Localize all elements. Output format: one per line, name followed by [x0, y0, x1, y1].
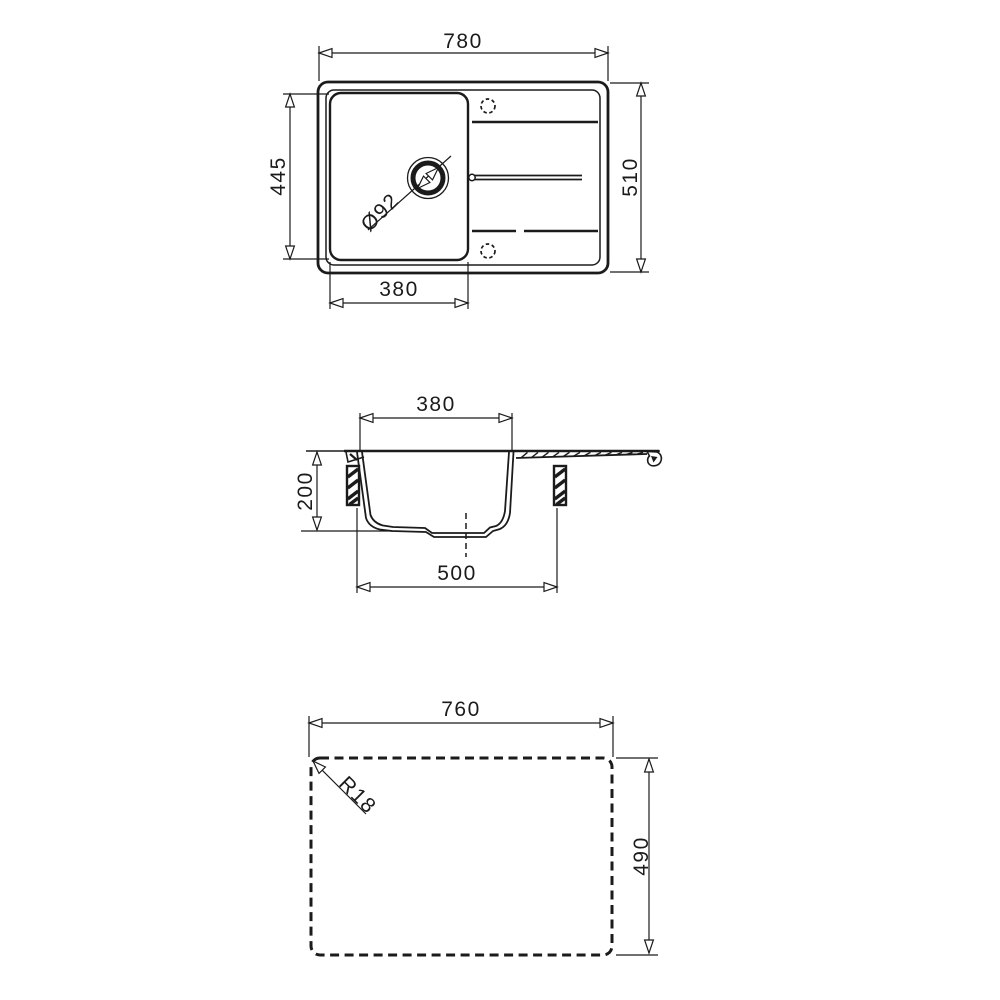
section-view — [301, 413, 661, 593]
dim-380-section — [360, 413, 512, 450]
top-view — [283, 46, 649, 309]
arrowhead — [418, 176, 430, 188]
label-cutout-width: 760 — [441, 698, 481, 721]
arrowhead — [313, 452, 322, 465]
arrowhead — [595, 49, 608, 58]
label-bowl-width-section: 380 — [416, 393, 456, 416]
drainboard-section — [516, 452, 661, 466]
arrowhead — [600, 719, 613, 728]
tap-hole-knockout-bottom — [481, 244, 495, 258]
mounting-clamp-left — [347, 466, 359, 505]
arrowhead — [286, 94, 295, 107]
label-overall-depth: 510 — [619, 157, 642, 197]
arrowhead — [357, 583, 370, 592]
bowl-section — [357, 452, 514, 537]
arrowhead — [309, 719, 322, 728]
arrowhead — [330, 299, 343, 308]
dimension-labels: 780 445 510 380 Ø92 380 200 500 760 490 … — [267, 30, 653, 876]
arrowhead — [637, 259, 646, 272]
arrowhead — [319, 49, 332, 58]
label-base-width: 500 — [437, 562, 477, 585]
arrowhead — [645, 940, 654, 953]
arrowhead — [313, 517, 322, 530]
sink-drawing-svg: 780 445 510 380 Ø92 380 200 500 760 490 … — [0, 0, 1000, 1000]
label-bowl-width-top: 380 — [379, 278, 419, 301]
label-cutout-depth: 490 — [630, 836, 653, 876]
drainboard-grooves — [469, 122, 598, 231]
arrowhead — [544, 583, 557, 592]
label-corner-radius: R18 — [334, 772, 381, 819]
arrowhead — [286, 246, 295, 259]
mounting-clamp-right — [554, 466, 566, 505]
tap-hole-knockout-top — [481, 99, 495, 113]
technical-drawing-canvas: 780 445 510 380 Ø92 380 200 500 760 490 … — [0, 0, 1000, 1000]
label-bowl-depth: 445 — [267, 156, 290, 196]
arrowhead — [637, 83, 646, 96]
arrowhead — [645, 759, 654, 772]
groove-end-dot — [469, 174, 475, 180]
arrowhead — [360, 414, 373, 423]
label-bowl-height: 200 — [294, 471, 317, 511]
arrowhead — [426, 168, 438, 180]
cutout-view — [309, 716, 658, 955]
sink-inner-rim — [326, 90, 600, 265]
arrowhead — [499, 414, 512, 423]
sink-outer-edge — [318, 82, 608, 273]
arrowhead — [455, 299, 468, 308]
dim-760 — [309, 716, 613, 757]
bowl-outline — [330, 93, 468, 260]
label-overall-width: 780 — [443, 30, 483, 53]
label-drain-diameter: Ø92 — [357, 189, 405, 237]
